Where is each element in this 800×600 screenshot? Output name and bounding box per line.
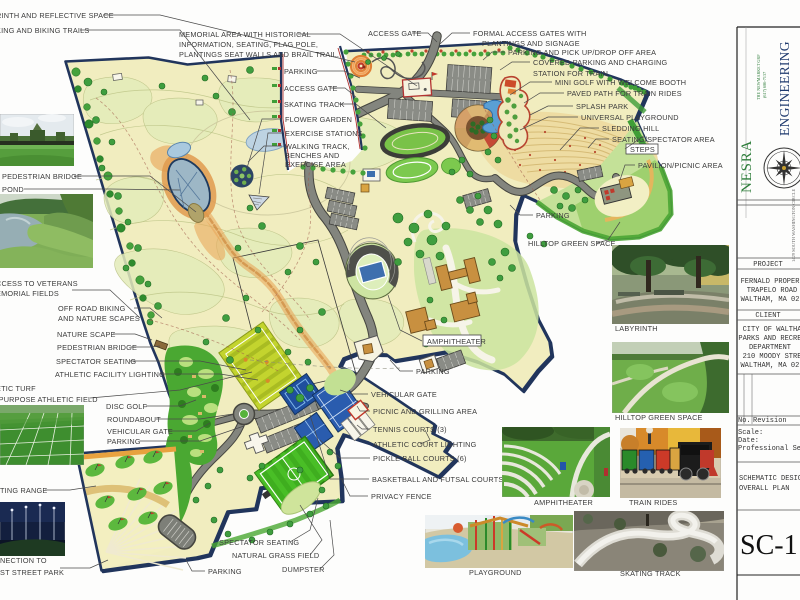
svg-text:WALKING TRACK,: WALKING TRACK, xyxy=(285,142,350,151)
svg-text:PAVILION/PICNIC AREA: PAVILION/PICNIC AREA xyxy=(638,161,723,170)
svg-text:DUMPSTER: DUMPSTER xyxy=(282,565,325,574)
svg-text:NESRA: NESRA xyxy=(739,140,755,193)
svg-text:STATION FOR TRAIN: STATION FOR TRAIN xyxy=(533,69,608,78)
svg-text:EMORIAL FIELDS: EMORIAL FIELDS xyxy=(0,289,59,298)
svg-text:OVERALL PLAN: OVERALL PLAN xyxy=(739,485,789,493)
svg-text:WALTHAM, MA 02-: WALTHAM, MA 02- xyxy=(740,362,800,370)
svg-text:(617) 686-7137: (617) 686-7137 xyxy=(762,72,767,98)
svg-text:ATHLETIC COURT LIGHTING: ATHLETIC COURT LIGHTING xyxy=(373,440,477,449)
svg-text:HILLTOP GREEN SPACE: HILLTOP GREEN SPACE xyxy=(615,413,703,422)
svg-text:PARKING AND PICK UP/DROP OFF A: PARKING AND PICK UP/DROP OFF AREA xyxy=(508,48,656,57)
svg-text:ETIC TURF: ETIC TURF xyxy=(0,384,36,393)
svg-text:PRIVACY FENCE: PRIVACY FENCE xyxy=(371,492,432,501)
svg-text:Professional Seal: Professional Seal xyxy=(738,445,800,453)
svg-text:BENCHES AND: BENCHES AND xyxy=(285,151,340,160)
svg-text:INFORMATION, SEATING, FLAG POL: INFORMATION, SEATING, FLAG POLE, xyxy=(179,40,318,49)
svg-text:ACCESS GATE: ACCESS GATE xyxy=(284,84,338,93)
svg-text:MINI GOLF WITH WELCOME BOOTH: MINI GOLF WITH WELCOME BOOTH xyxy=(555,78,686,87)
svg-text:NECTION TO: NECTION TO xyxy=(0,556,47,565)
svg-text:SLEDDING HILL: SLEDDING HILL xyxy=(602,124,659,133)
svg-text:AND NATURE SCAPES: AND NATURE SCAPES xyxy=(58,314,140,323)
svg-text:CITY OF WALTHA: CITY OF WALTHA xyxy=(743,326,800,334)
svg-text:CCESS TO VETERANS: CCESS TO VETERANS xyxy=(0,279,78,288)
svg-text:VEHICULAR GATE: VEHICULAR GATE xyxy=(107,427,173,436)
svg-text:1429 SOUTH WASHINGTON CIRCLE: 1429 SOUTH WASHINGTON CIRCLE xyxy=(791,189,796,262)
svg-text:-PURPOSE ATHLETIC FIELD: -PURPOSE ATHLETIC FIELD xyxy=(0,395,98,404)
svg-text:NATURE SCAPE: NATURE SCAPE xyxy=(57,330,116,339)
svg-text:SC-1: SC-1 xyxy=(740,530,798,561)
svg-text:VEHICULAR GATE: VEHICULAR GATE xyxy=(371,390,437,399)
svg-text:SPLASH PARK: SPLASH PARK xyxy=(576,102,628,111)
svg-text:WALTHAM, MA 02: WALTHAM, MA 02 xyxy=(741,296,800,304)
svg-text:Scale:: Scale: xyxy=(738,429,763,437)
svg-text:PROJECT: PROJECT xyxy=(753,261,782,269)
svg-text:Date:: Date: xyxy=(738,437,759,445)
svg-text:PARKING: PARKING xyxy=(208,567,242,576)
svg-text:COVERED PARKING AND CHARGING: COVERED PARKING AND CHARGING xyxy=(533,58,668,67)
svg-text:SCHEMATIC DESIGN: SCHEMATIC DESIGN xyxy=(739,475,800,483)
svg-text:ST STREET PARK: ST STREET PARK xyxy=(0,568,64,577)
svg-text:STEPS: STEPS xyxy=(630,145,655,154)
svg-text:AMPHITHEATER: AMPHITHEATER xyxy=(427,337,486,346)
svg-text:KING AND BIKING TRAILS: KING AND BIKING TRAILS xyxy=(0,26,89,35)
svg-text:OFF ROAD BIKING: OFF ROAD BIKING xyxy=(58,304,126,313)
svg-text:PARKING: PARKING xyxy=(416,367,450,376)
svg-text:HILLTOP GREEN SPACE: HILLTOP GREEN SPACE xyxy=(528,239,616,248)
svg-text:MEMORIAL AREA WITH HISTORICAL: MEMORIAL AREA WITH HISTORICAL xyxy=(179,30,311,39)
svg-text:SKATING TRACK: SKATING TRACK xyxy=(284,100,345,109)
svg-text:PAVED PATH FOR TRAIN RIDES: PAVED PATH FOR TRAIN RIDES xyxy=(567,89,682,98)
svg-text:SPECTATOR SEATING: SPECTATOR SEATING xyxy=(219,538,299,547)
svg-text:UNIVERSAL PLAYGROUND: UNIVERSAL PLAYGROUND xyxy=(581,113,679,122)
svg-text:PEDESTRIAN BRIDGE: PEDESTRIAN BRIDGE xyxy=(57,343,137,352)
svg-text:ATHLETIC FACILITY LIGHTING: ATHLETIC FACILITY LIGHTING xyxy=(55,370,165,379)
svg-text:ROUNDABOUT: ROUNDABOUT xyxy=(107,415,161,424)
svg-text:PARKING: PARKING xyxy=(284,67,318,76)
svg-text:TENNIS COURTS (3): TENNIS COURTS (3) xyxy=(373,425,447,434)
svg-text:RINTH AND REFLECTIVE SPACE: RINTH AND REFLECTIVE SPACE xyxy=(0,11,114,20)
svg-text:PLANTINGS SEAT WALLS AND BRAIL: PLANTINGS SEAT WALLS AND BRAIL TRAIL. xyxy=(179,50,339,59)
svg-text:PEDESTRIAN BRIDGE: PEDESTRIAN BRIDGE xyxy=(2,172,82,181)
svg-text:DEPARTMENT: DEPARTMENT xyxy=(749,344,791,352)
svg-text:EXERCISE STATIONS: EXERCISE STATIONS xyxy=(285,129,363,138)
svg-text:ACCESS GATE: ACCESS GATE xyxy=(368,29,422,38)
svg-text:CLIENT: CLIENT xyxy=(755,312,780,320)
svg-text:DISC GOLF: DISC GOLF xyxy=(106,402,147,411)
svg-text:210 MOODY STRE: 210 MOODY STRE xyxy=(743,353,800,361)
svg-text:No.: No. xyxy=(738,417,751,425)
svg-text:AMPHITHEATER: AMPHITHEATER xyxy=(534,498,593,507)
svg-text:PARKS AND RECREA: PARKS AND RECREA xyxy=(738,335,800,343)
svg-text:PICKLE BALL COURTS (6): PICKLE BALL COURTS (6) xyxy=(373,454,467,463)
svg-text:FORMAL ACCESS GATES WITH: FORMAL ACCESS GATES WITH xyxy=(473,29,586,38)
svg-text:POND: POND xyxy=(2,185,24,194)
svg-text:PLANTINGS AND SIGNAGE: PLANTINGS AND SIGNAGE xyxy=(482,39,580,48)
svg-text:FERNALD PROPER: FERNALD PROPER xyxy=(741,278,800,286)
svg-text:FLOWER GARDEN: FLOWER GARDEN xyxy=(285,115,352,124)
svg-text:TRAPELO ROAD: TRAPELO ROAD xyxy=(747,287,797,295)
svg-text:PARKING: PARKING xyxy=(536,211,570,220)
svg-text:EXERCISE AREA: EXERCISE AREA xyxy=(285,160,346,169)
svg-text:PICNIC AND GRILLING AREA: PICNIC AND GRILLING AREA xyxy=(373,407,477,416)
svg-text:BASKETBALL AND FUTSAL COURTS (: BASKETBALL AND FUTSAL COURTS (2) xyxy=(372,475,515,484)
svg-text:TING RANGE: TING RANGE xyxy=(0,486,47,495)
svg-text:Revision: Revision xyxy=(753,417,787,425)
svg-text:NATURAL GRASS FIELD: NATURAL GRASS FIELD xyxy=(232,551,319,560)
svg-text:THE NEWMARKET GRP: THE NEWMARKET GRP xyxy=(756,54,761,100)
svg-text:TRAIN RIDES: TRAIN RIDES xyxy=(629,498,677,507)
svg-text:SPECTATOR SEATING: SPECTATOR SEATING xyxy=(56,357,136,366)
svg-text:PLAYGROUND: PLAYGROUND xyxy=(469,568,522,577)
svg-text:LABYRINTH: LABYRINTH xyxy=(615,324,658,333)
svg-text:SEATING/SPECTATOR AREA: SEATING/SPECTATOR AREA xyxy=(612,135,715,144)
svg-text:ENGINEERING: ENGINEERING xyxy=(777,41,792,136)
svg-text:PARKING: PARKING xyxy=(107,437,141,446)
